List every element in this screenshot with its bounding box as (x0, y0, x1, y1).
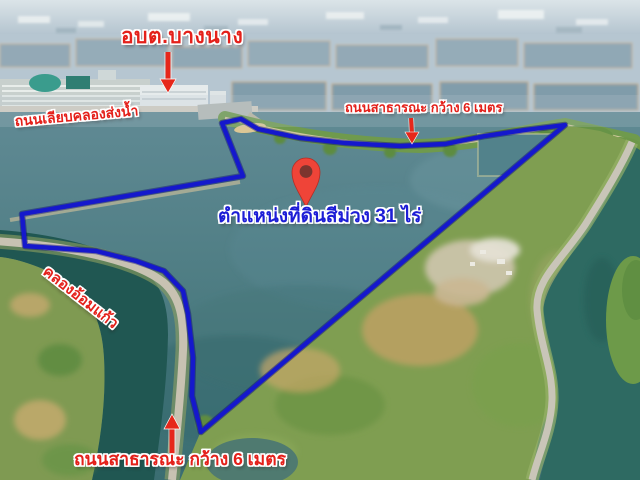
public-road-bottom-label: ถนนสาธารณะ กว้าง 6 เมตร (74, 449, 286, 469)
public-road-top-label: ถนนสาธารณะ กว้าง 6 เมตร (345, 101, 502, 116)
parcel-location-label: ตำแหน่งที่ดินสีม่วง 31 ไร่ (218, 206, 421, 228)
annotated-aerial-photo: อบต.บางนาง ถนนเลียบคลองส่งน้ำ ถนนสาธารณะ… (0, 0, 640, 480)
landmark-label-obt-bangnang: อบต.บางนาง (121, 25, 243, 49)
aerial-photo-scene (0, 0, 640, 480)
